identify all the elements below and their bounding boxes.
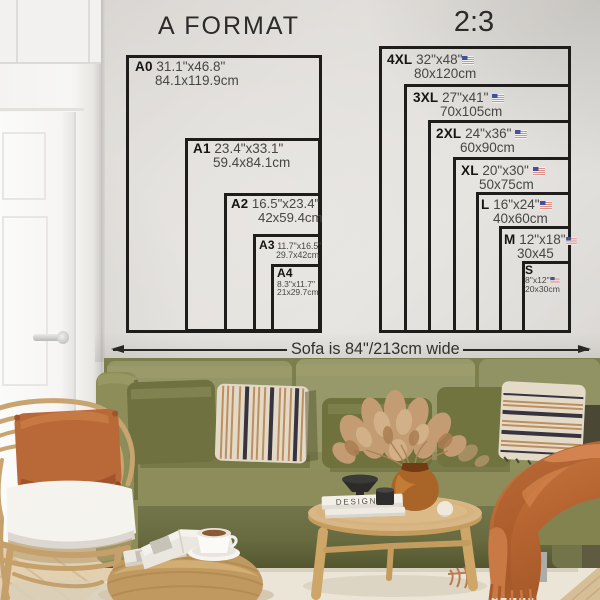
svg-text:DESIGN: DESIGN	[336, 496, 378, 506]
